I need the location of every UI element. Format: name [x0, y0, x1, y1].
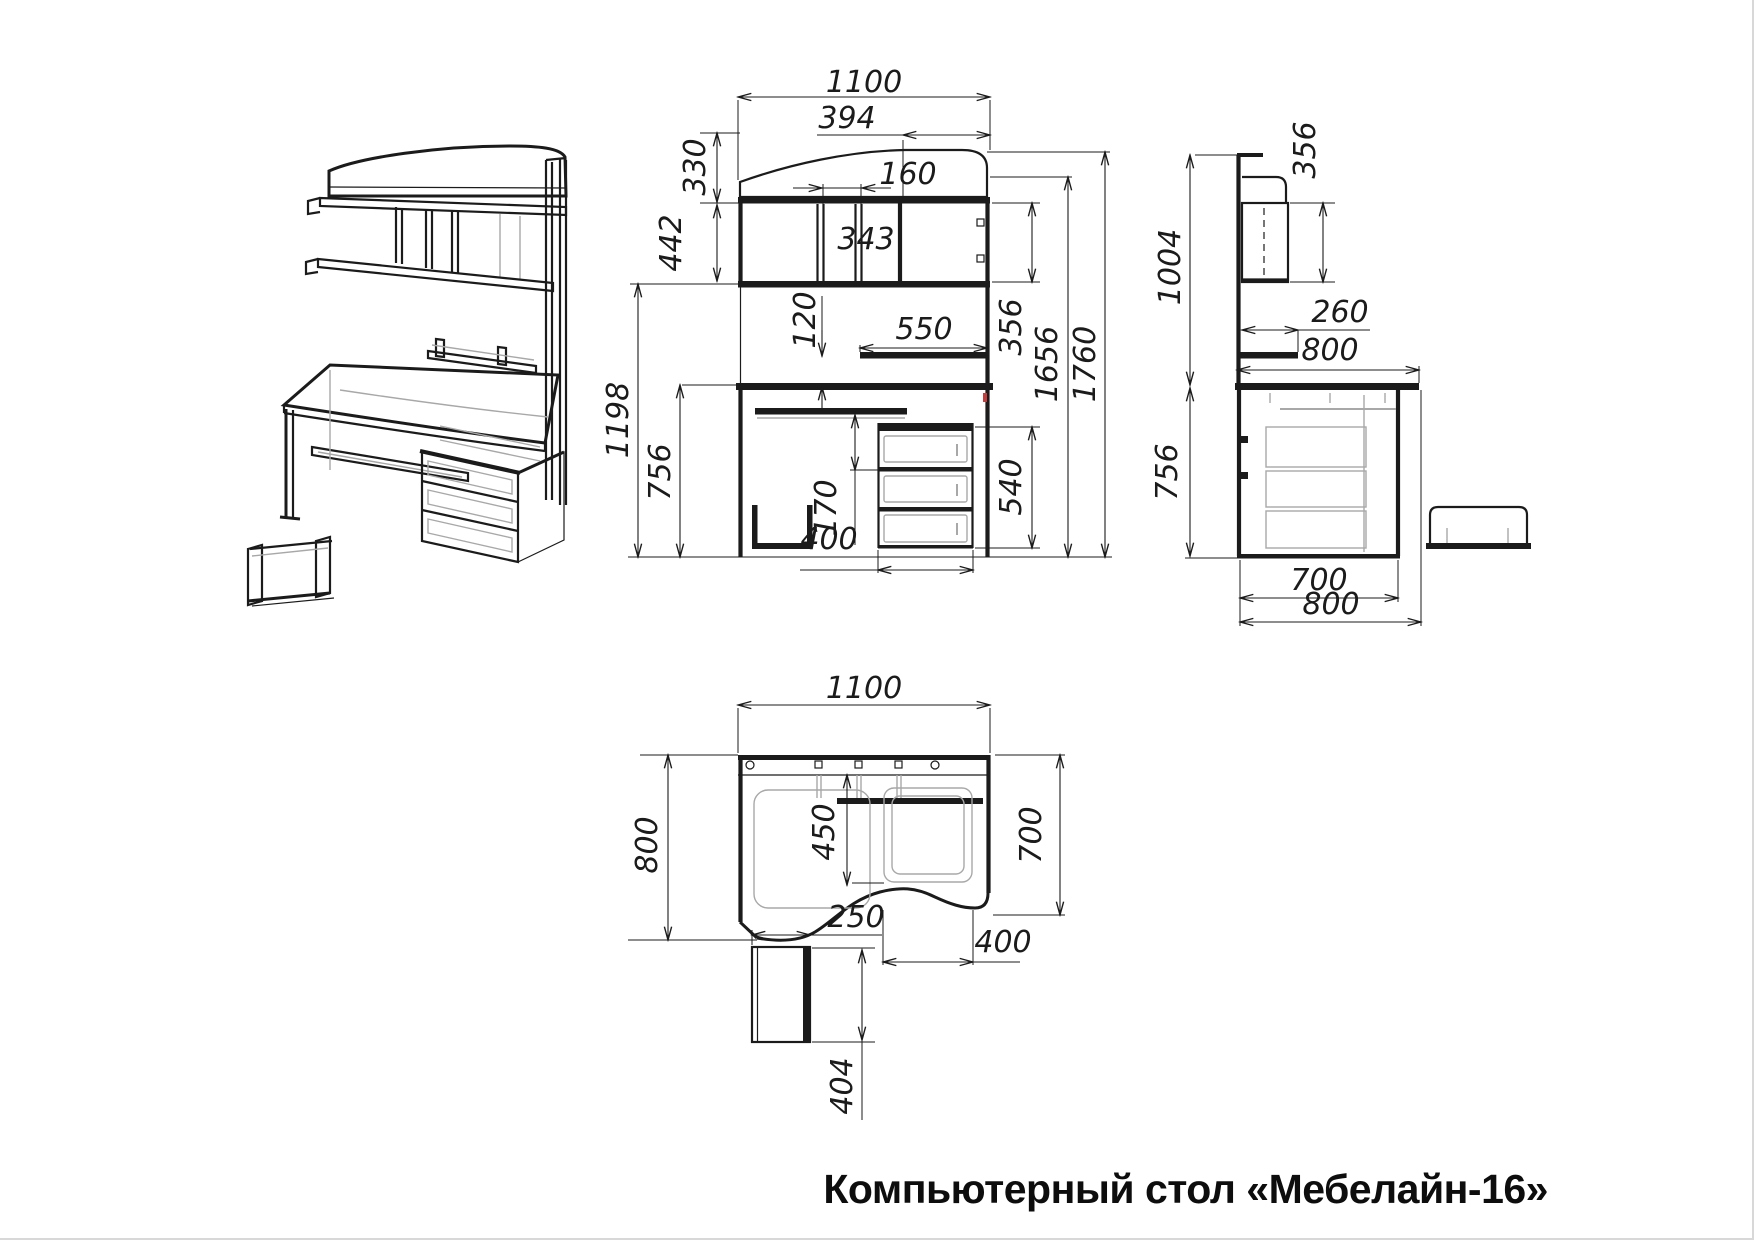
dim-front-total-height: 1760 [1068, 326, 1103, 402]
dim-front-drawer-height: 540 [994, 458, 1029, 515]
dim-front-top-height: 330 [678, 138, 713, 195]
dim-side-hutch-depth: 356 [1288, 121, 1323, 178]
blueprint-page: 1100 394 160 343 330 442 1198 756 120 55… [0, 0, 1754, 1240]
top-view: 1100 800 450 700 250 400 404 [628, 671, 1065, 1120]
dim-front-niche: 160 [879, 157, 936, 192]
dim-front-under-hutch: 1198 [601, 382, 636, 458]
dim-front-shelf-width: 550 [895, 312, 952, 347]
side-view: 356 1004 260 800 756 700 800 [1150, 121, 1531, 626]
dim-top-right-depth: 700 [1014, 806, 1049, 863]
technical-drawing: 1100 394 160 343 330 442 1198 756 120 55… [0, 0, 1754, 1240]
dim-front-desk-height: 756 [643, 443, 678, 500]
dim-top-width: 1100 [826, 671, 902, 706]
dim-front-row-height-right: 356 [994, 298, 1029, 355]
dim-front-drawer-width: 400 [800, 522, 857, 557]
dim-top-tray-inset: 450 [807, 803, 842, 860]
dim-top-cpu-depth: 404 [825, 1057, 860, 1114]
dim-front-gap: 120 [788, 291, 823, 348]
front-view: 1100 394 160 343 330 442 1198 756 120 55… [601, 65, 1112, 573]
dim-top-chamfer: 250 [827, 900, 884, 935]
dim-side-hutch-height: 1004 [1153, 229, 1188, 305]
dim-top-depth: 800 [630, 816, 665, 873]
isometric-view [248, 146, 566, 606]
dim-front-compartment: 343 [837, 222, 894, 257]
dim-front-shelf-left: 394 [818, 101, 875, 136]
dim-side-desk-depth: 800 [1301, 333, 1358, 368]
dim-front-width: 1100 [826, 65, 902, 100]
dim-top-tray-width: 400 [974, 925, 1031, 960]
dim-side-desk-height: 756 [1150, 443, 1185, 500]
dim-side-total-depth: 800 [1302, 587, 1359, 622]
dim-front-row-height: 442 [654, 214, 689, 271]
dim-side-shelf-depth: 260 [1311, 295, 1368, 330]
drawing-title: Компьютерный стол «Мебелайн-16» [823, 1166, 1548, 1213]
dim-front-body-height: 1656 [1030, 326, 1065, 402]
